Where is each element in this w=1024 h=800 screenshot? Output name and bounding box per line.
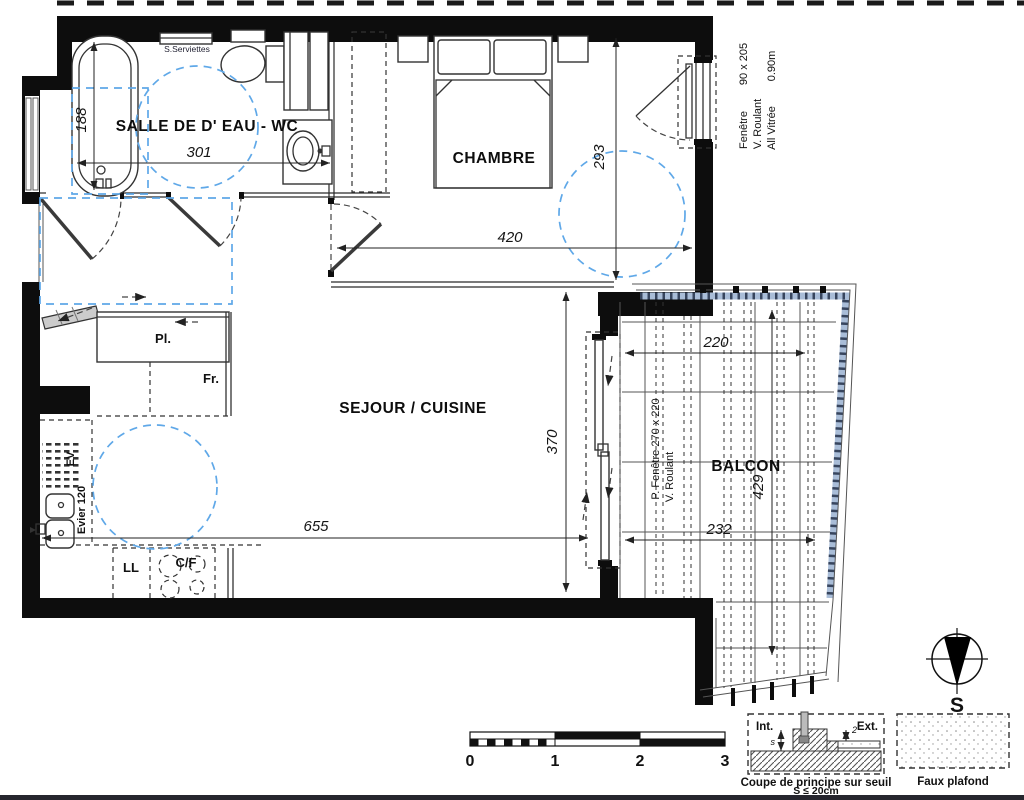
- scale-tick-2: 2: [636, 753, 645, 770]
- floor-plan-sheet: SALLE DE D' EAU - WC CHAMBRE SEJOUR / CU…: [0, 0, 1024, 800]
- compass: S: [926, 628, 988, 717]
- bathroom-window: [25, 96, 39, 192]
- dim-balcony-bottom: 232: [705, 521, 732, 538]
- fridge-label: Fr.: [203, 371, 219, 386]
- sliding-bay-window: [583, 332, 620, 568]
- dim-bath-width: 188: [73, 107, 90, 133]
- ceiling-legend-caption: Faux plafond: [917, 776, 989, 788]
- threshold-ext-label: Ext.: [857, 721, 878, 733]
- dim-living-width: 655: [303, 518, 329, 535]
- compass-south-label: S: [950, 694, 964, 717]
- window-note-shutter: V. Roulant: [752, 99, 764, 149]
- dim-bedroom-width: 420: [497, 229, 523, 246]
- towels-label: S.Serviettes: [164, 44, 210, 54]
- bathroom-door-left: [41, 199, 121, 259]
- washer-label: LL: [123, 560, 139, 575]
- dim-bath-length: 301: [186, 144, 211, 161]
- sink-size-label: Evier 120: [76, 486, 88, 534]
- bathroom-door-right: [169, 198, 241, 246]
- nightstand-left: [398, 36, 428, 62]
- scale-tick-3: 3: [721, 753, 730, 770]
- bedroom-window: [636, 56, 716, 148]
- balcony-label: BALCON: [711, 458, 780, 475]
- nightstand-right: [558, 36, 588, 62]
- ceiling-legend: Faux plafond: [897, 714, 1009, 788]
- dim-bedroom-depth: 293: [591, 144, 608, 171]
- threshold-s-label: s: [771, 737, 776, 747]
- balcony-door-note-2: V. Roulant: [664, 452, 676, 502]
- window-note-sill: 0.90m: [766, 51, 778, 82]
- window-note-size: 90 x 205: [738, 43, 750, 85]
- bathroom-label: SALLE DE D' EAU - WC: [116, 118, 298, 135]
- sink-code-label: EV: [65, 451, 77, 466]
- threshold-int-label: Int.: [756, 721, 773, 733]
- threshold-caption-2: S ≤ 20cm: [793, 785, 838, 797]
- bathroom-shelves: [284, 32, 328, 110]
- towel-rack: [160, 33, 212, 44]
- threshold-detail: s 2 Int. Ext. Coupe de principe sur seui…: [741, 712, 892, 797]
- scale-tick-1: 1: [551, 753, 560, 770]
- wardrobe: [352, 32, 386, 192]
- window-note-name: Fenêtre: [738, 111, 750, 149]
- closet: [97, 312, 231, 416]
- scale-tick-0: 0: [466, 753, 475, 770]
- balcony-door-note-1: P. Fenêtre 270 x 220: [650, 398, 662, 499]
- compass-south-needle: [944, 637, 971, 686]
- bedroom-label: CHAMBRE: [453, 150, 536, 167]
- sheet-border-bottom: [0, 795, 1024, 800]
- scale-bar: 0 1 2 3: [466, 732, 730, 770]
- closet-label: Pl.: [155, 331, 171, 346]
- floor-plan-canvas: SALLE DE D' EAU - WC CHAMBRE SEJOUR / CU…: [0, 0, 1024, 800]
- dim-balcony-length: 429: [750, 474, 767, 500]
- dim-living-depth: 370: [544, 429, 561, 455]
- living-label: SEJOUR / CUISINE: [339, 400, 487, 417]
- entrance-door: [42, 306, 99, 329]
- dim-balcony-top: 220: [702, 334, 729, 351]
- bedroom-door: [331, 204, 381, 271]
- window-note-glazing: All Vitrée: [766, 106, 778, 150]
- cooktop-label: C/F: [176, 555, 197, 570]
